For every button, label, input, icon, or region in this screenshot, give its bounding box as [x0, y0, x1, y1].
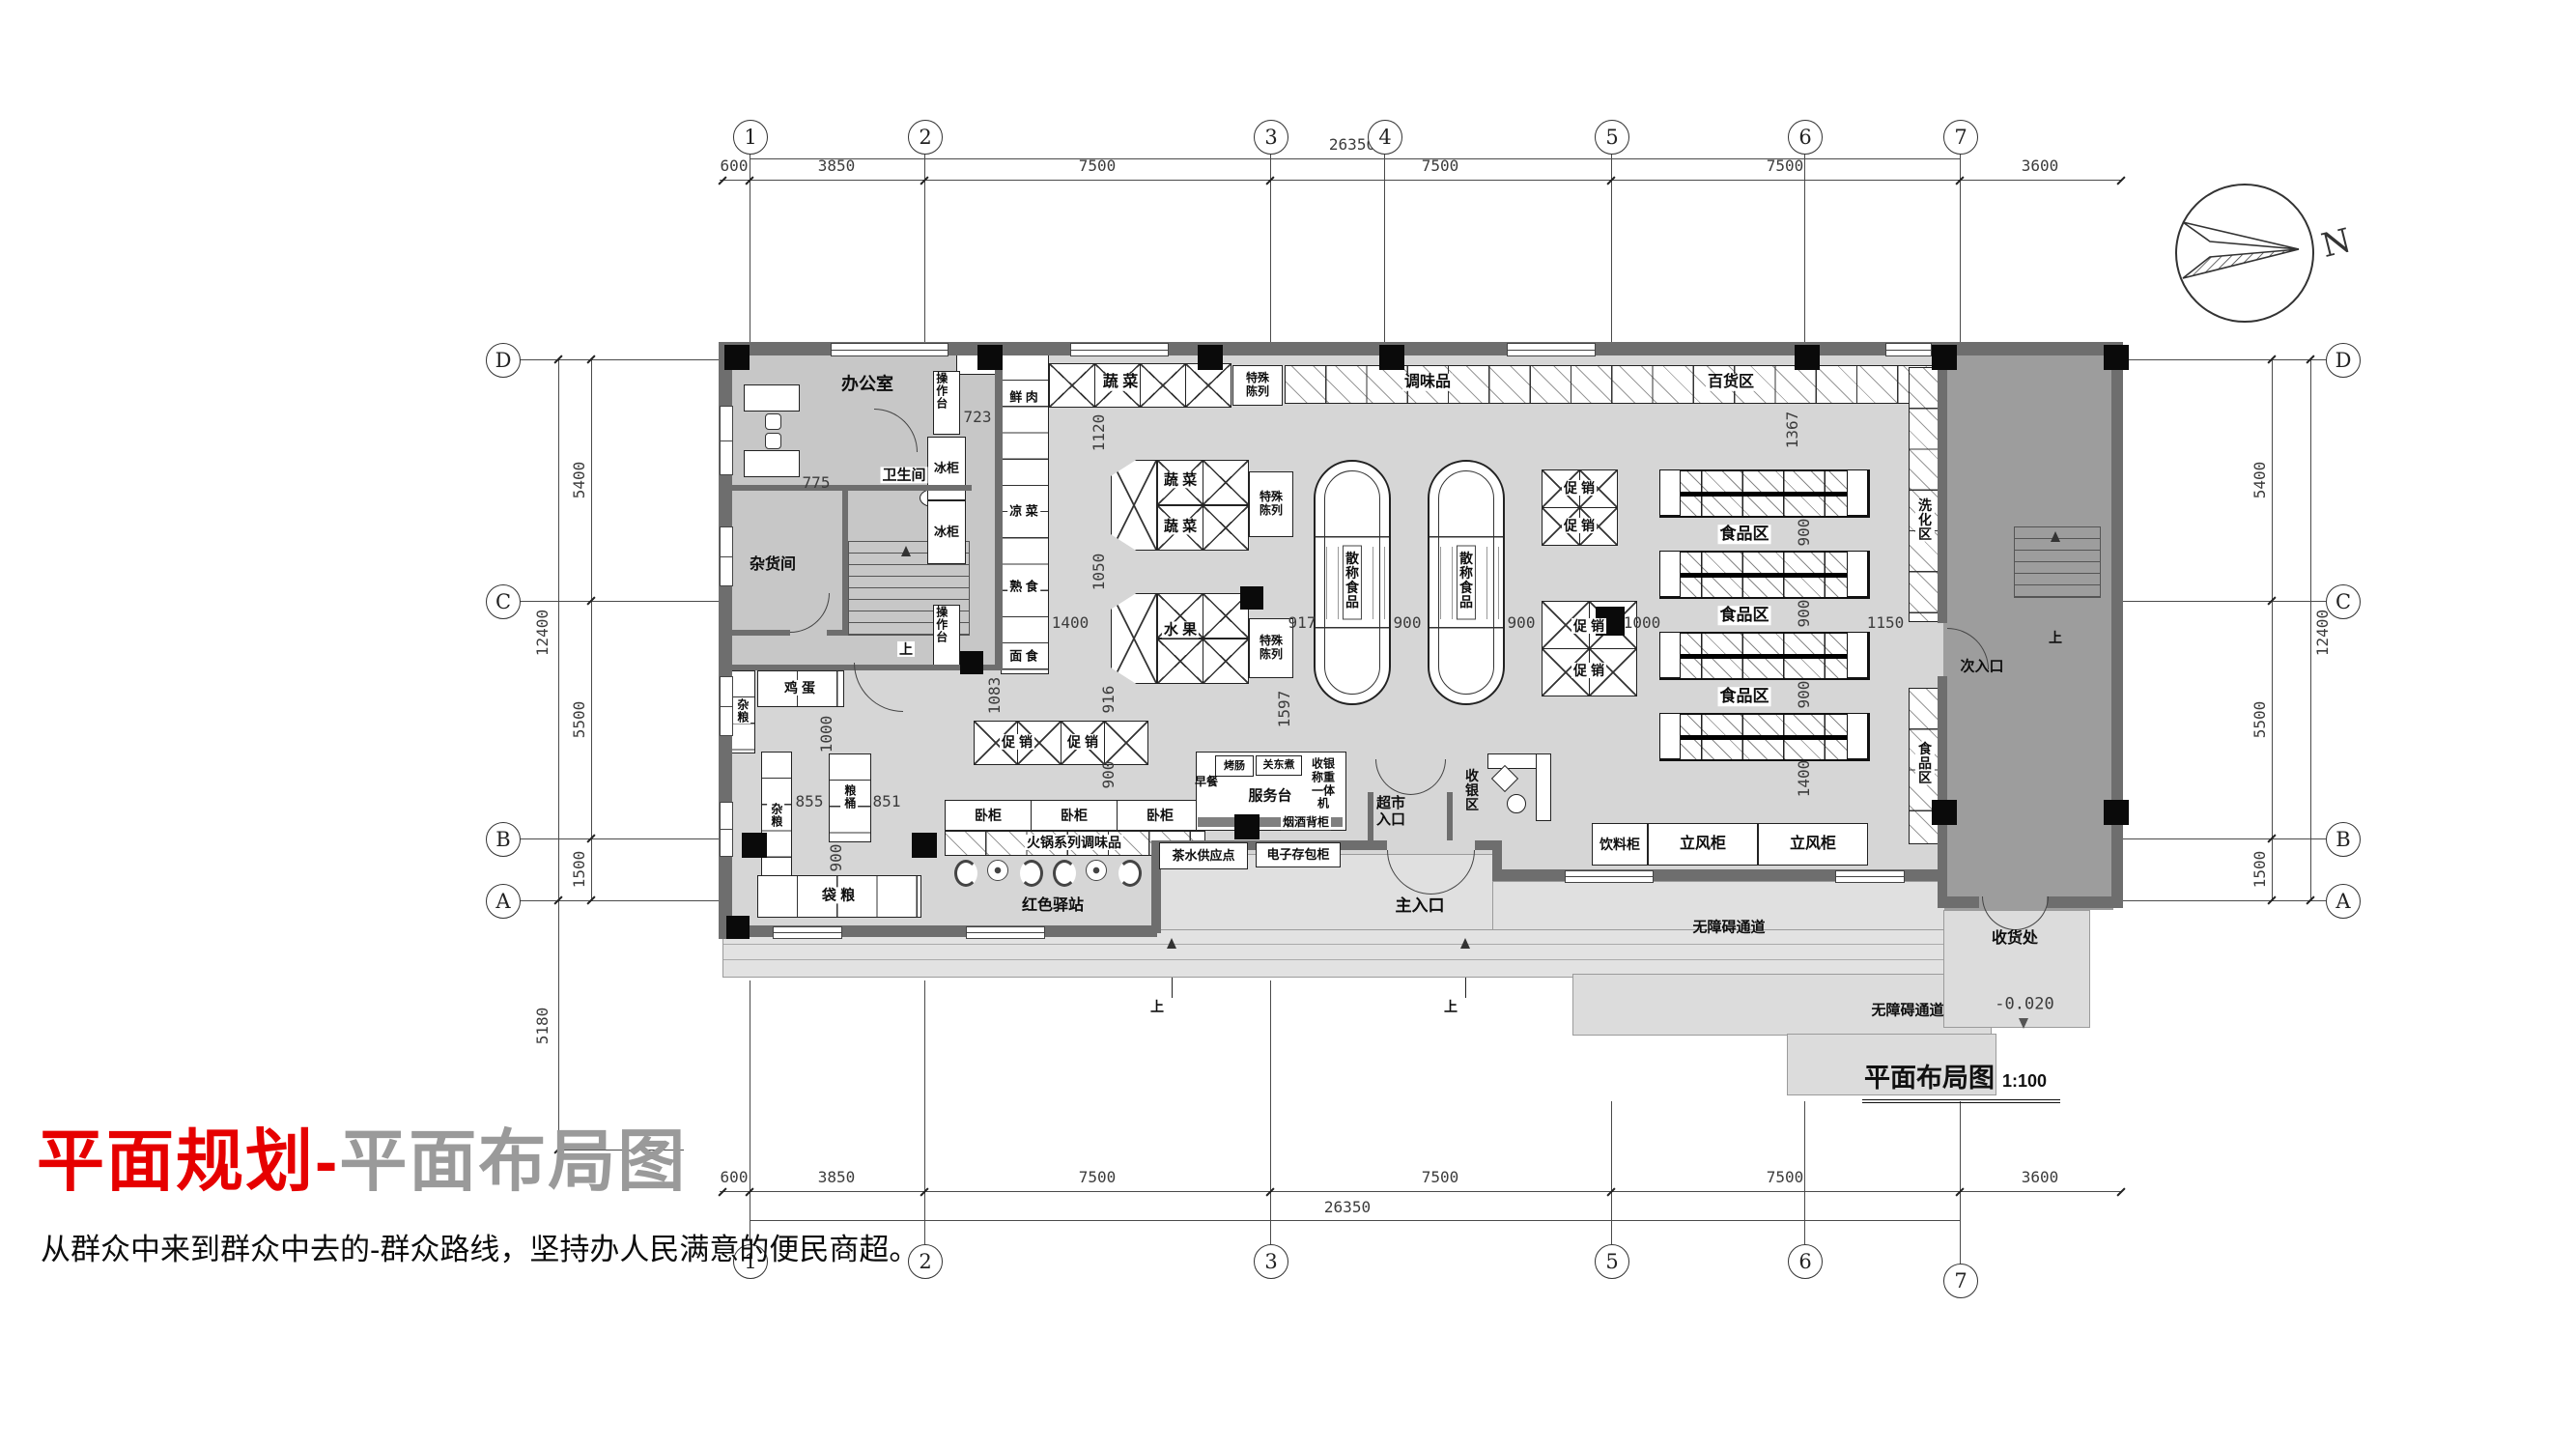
dim-851: 851 [873, 794, 901, 810]
dim-bottom-3600: 3600 [2022, 1170, 2059, 1185]
label-breakfast: 早餐 [1195, 776, 1218, 789]
window-icon [720, 406, 733, 475]
prep-counter-2: 操作台 [933, 605, 960, 668]
dim-1000a: 1000 [819, 716, 835, 753]
elevation-marker-icon [2019, 1018, 2028, 1034]
column [977, 345, 1003, 370]
label-bag-grain: 袋 粮 [820, 887, 857, 903]
dim-line-bottom [720, 1191, 2121, 1192]
north-compass-icon [2175, 184, 2314, 323]
display-table [1203, 505, 1249, 551]
tea-point: 茶水供应点 [1159, 842, 1248, 869]
dim-1367: 1367 [1785, 412, 1800, 449]
label-service-desk: 服务台 [1248, 787, 1291, 804]
zone-label-food-3: 食品区 [1718, 687, 1771, 706]
window-icon [1070, 343, 1169, 356]
label-pos: 收银称重一体机 [1310, 757, 1337, 810]
desk [744, 450, 800, 477]
office-chair [765, 413, 781, 430]
stool-icon [1507, 794, 1526, 813]
zone-label-cashier: 收银区 [1464, 769, 1480, 812]
grid-bubble-top-4: 4 [1368, 120, 1402, 155]
column [1795, 345, 1820, 370]
dim-left-5180: 5180 [535, 1008, 551, 1045]
column [1240, 586, 1263, 610]
dim-line-left-inner [591, 359, 592, 900]
label-promo-2: 促 销 [1562, 518, 1597, 533]
chair-icon [1020, 860, 1043, 887]
dim-900d: 900 [1508, 615, 1536, 631]
dim-right-5400: 5400 [2252, 462, 2268, 499]
wall-office-divider [995, 350, 1003, 668]
dim-top-600: 600 [721, 158, 749, 174]
dim-bottom-7500a: 7500 [1079, 1170, 1117, 1185]
label-sub-entry: 次入口 [1960, 658, 2003, 674]
grid-bubble-right-C: C [2326, 584, 2361, 619]
chest-freezer-2: 卧柜 [1031, 800, 1118, 831]
chair-icon [1118, 860, 1142, 887]
window-icon [1507, 343, 1596, 356]
dim-top-7500c: 7500 [1767, 158, 1804, 174]
stair-up-label: 上 [897, 641, 915, 657]
promo-table [1104, 721, 1148, 765]
column [1379, 345, 1404, 370]
display-table [1049, 363, 1095, 408]
dim-bottom-7500c: 7500 [1767, 1170, 1804, 1185]
dim-900b: 900 [1101, 761, 1117, 789]
receiving-zone-floor [1943, 350, 2113, 910]
window-icon [720, 802, 733, 857]
label-red-station: 红色驿站 [1022, 897, 1084, 915]
dim-916: 916 [1101, 686, 1117, 714]
grid-bubble-left-B: B [486, 822, 521, 857]
stair-up-arrow-icon [2051, 526, 2060, 542]
dim-top-3600: 3600 [2022, 158, 2059, 174]
bulk-gondola-2: 散称食品 [1428, 460, 1505, 705]
wall-receiving-divider-b [1938, 676, 1947, 908]
label-egg: 鸡 蛋 [782, 680, 817, 696]
column [1932, 345, 1957, 370]
label-receiving: 收货处 [1992, 930, 2038, 948]
walk-up-label: 上 [1444, 999, 1458, 1014]
column [1198, 345, 1223, 370]
upright-cooler-1: 立风柜 [1648, 823, 1758, 866]
label-market-entry: 超市入口 [1374, 795, 1407, 829]
window-icon [720, 676, 733, 736]
dim-bottom-7500b: 7500 [1422, 1170, 1459, 1185]
column [726, 916, 750, 939]
dim-bottom-total: 26350 [1324, 1200, 1371, 1215]
grid-bubble-right-B: B [2326, 822, 2361, 857]
dim-1597: 1597 [1277, 691, 1292, 728]
chair-icon [1053, 860, 1076, 887]
sausage-stand: 烤肠 [1215, 755, 1254, 777]
dim-1400a: 1400 [1052, 615, 1090, 631]
office-chair [765, 433, 781, 449]
label-promo-6: 促 销 [1065, 734, 1100, 750]
label-barrier-free-2: 无障碍通道 [1871, 1002, 1943, 1018]
dim-900c: 900 [1394, 615, 1422, 631]
dim-917: 917 [1288, 615, 1316, 631]
display-table [1157, 639, 1203, 684]
column [724, 345, 750, 370]
north-wall-shelving [1285, 365, 1939, 404]
page-subtitle: 从群众中来到群众中去的-群众路线，坚持办人民满意的便民商超。 [41, 1225, 919, 1268]
room-label-office: 办公室 [841, 375, 893, 395]
grid-bubble-bottom-6: 6 [1788, 1244, 1823, 1279]
drawing-title: 平面布局图1:100 [1862, 1057, 2060, 1103]
dim-right-5500: 5500 [2252, 701, 2268, 739]
dim-bottom-3850: 3850 [818, 1170, 856, 1185]
freezer-2: 冰柜 [927, 500, 966, 564]
dim-right-12400: 12400 [2315, 610, 2331, 656]
grid-line-6 [1804, 153, 1805, 343]
locker: 电子存包柜 [1256, 842, 1341, 867]
grid-line-C [519, 601, 722, 602]
stair-up-label: 上 [2049, 630, 2062, 645]
column [1234, 814, 1260, 839]
display-table-end [1111, 460, 1157, 551]
page-title-gray: 平面布局图 [339, 1123, 687, 1199]
display-table [1203, 639, 1249, 684]
walk-up-arrow-icon [1460, 933, 1470, 949]
grid-line-D [519, 359, 722, 360]
grid-bubble-top-2: 2 [908, 120, 943, 155]
zone-label-dept: 百货区 [1706, 374, 1756, 391]
dim-top-3850: 3850 [818, 158, 856, 174]
dim-900f: 900 [1797, 600, 1812, 628]
label-grain-2: 杂粮 [767, 803, 784, 828]
compass-arrow-icon [2177, 185, 2308, 317]
grid-bubble-left-D: D [486, 343, 521, 378]
display-table [1203, 460, 1249, 505]
display-table-end [1111, 593, 1157, 684]
wall-storage-divider [842, 491, 848, 634]
grid-line-4 [1384, 153, 1385, 343]
label-veg-1: 蔬 菜 [1101, 374, 1140, 391]
label-veg-3: 蔬 菜 [1162, 518, 1199, 534]
counter-label-fresh-meat: 鲜 肉 [1007, 391, 1040, 406]
dim-line-bottom-total [750, 1220, 1960, 1221]
label-fruit: 水 果 [1162, 621, 1199, 638]
dim-line-top [720, 180, 2121, 181]
chest-freezer-3: 卧柜 [1117, 800, 1203, 831]
drink-cooler: 饮料柜 [1592, 823, 1648, 866]
dim-900g: 900 [1797, 681, 1812, 709]
special-display-2: 特殊陈列 [1249, 471, 1293, 537]
window-icon [831, 343, 948, 356]
label-hotpot: 火锅系列调味品 [1025, 835, 1123, 850]
column [912, 833, 937, 858]
dim-left-5500: 5500 [572, 701, 587, 739]
dim-line-right-inner [2272, 359, 2273, 900]
dim-left-1500: 1500 [572, 851, 587, 889]
zone-label-seasoning: 调味品 [1402, 374, 1453, 391]
wall-south-mid-b [1475, 840, 1492, 850]
dim-left-5400: 5400 [572, 462, 587, 499]
window-icon [966, 926, 1045, 939]
counter-label-cooked-food: 熟 食 [1007, 581, 1040, 595]
dim-900a: 900 [829, 844, 844, 872]
dim-top-7500a: 7500 [1079, 158, 1117, 174]
dim-1120: 1120 [1091, 414, 1107, 452]
dim-1083: 1083 [987, 677, 1003, 715]
grid-bubble-right-D: D [2326, 343, 2361, 378]
drawing-scale: 1:100 [2002, 1071, 2047, 1091]
dim-1150: 1150 [1867, 615, 1905, 631]
grid-line-B [519, 838, 722, 839]
food-gondola-4 [1659, 713, 1870, 761]
label-promo-1: 促 销 [1562, 480, 1597, 496]
window-icon [773, 926, 842, 939]
label-barrier-free-1: 无障碍通道 [1692, 919, 1765, 935]
dim-855: 855 [796, 794, 824, 810]
column [742, 833, 767, 858]
display-table [1140, 363, 1186, 408]
grid-bubble-top-7: 7 [1943, 120, 1978, 155]
dim-top-7500b: 7500 [1422, 158, 1459, 174]
dim-line-left-outer [558, 359, 559, 1150]
dim-1400b: 1400 [1797, 760, 1812, 798]
oden-stand: 关东煮 [1256, 755, 1302, 776]
dim-900e: 900 [1797, 519, 1812, 547]
freezer-1: 冰柜 [927, 437, 966, 500]
column [2104, 800, 2129, 825]
grid-bubble-top-6: 6 [1788, 120, 1823, 155]
zone-label-food-1: 食品区 [1718, 525, 1771, 544]
room-label-storage: 杂货间 [750, 556, 796, 574]
grid-bubble-bottom-3: 3 [1254, 1244, 1288, 1279]
dim-723: 723 [964, 410, 992, 425]
window-icon [1885, 343, 1932, 356]
window-icon [720, 526, 733, 586]
grid-bubble-left-C: C [486, 584, 521, 619]
special-display-3: 特殊陈列 [1249, 618, 1293, 678]
wall-office-south [730, 485, 972, 491]
round-table-icon [987, 860, 1008, 881]
cashier-desk [1536, 753, 1551, 821]
label-elevation: -0.020 [1995, 997, 2053, 1013]
zone-label-wash: 洗化区 [1915, 498, 1935, 542]
grid-bubble-right-A: A [2326, 884, 2361, 919]
chest-freezer-1: 卧柜 [945, 800, 1032, 831]
zone-label-food-east: 食品区 [1915, 742, 1935, 785]
column [2104, 345, 2129, 370]
zone-label-food-2: 食品区 [1718, 606, 1771, 625]
grid-bubble-bottom-5: 5 [1595, 1244, 1629, 1279]
dim-775: 775 [803, 475, 831, 491]
chair-icon [954, 860, 977, 887]
wall-receiving-divider-a [1938, 342, 1947, 623]
food-gondola-2 [1659, 551, 1870, 599]
grid-line-A [519, 900, 722, 901]
dim-right-1500: 1500 [2252, 851, 2268, 889]
dim-bottom-600: 600 [721, 1170, 749, 1185]
column [960, 651, 983, 674]
grid-bubble-bottom-7: 7 [1943, 1264, 1978, 1298]
north-letter: N [2318, 221, 2356, 266]
dim-left-12400: 12400 [535, 610, 551, 656]
grid-bubble-top-1: 1 [733, 120, 768, 155]
label-promo-4: 促 销 [1571, 663, 1606, 678]
round-table-icon [1086, 860, 1107, 881]
bulk-gondola-1: 散称食品 [1314, 460, 1391, 705]
label-promo-5: 促 销 [1000, 734, 1034, 750]
counter-label-cold-dish: 凉 菜 [1007, 505, 1040, 520]
label-promo-3: 促 销 [1571, 618, 1606, 634]
label-grain-barrel: 粮桶 [840, 784, 858, 810]
upright-cooler-2: 立风柜 [1758, 823, 1868, 866]
label-tobacco-cabinet: 烟酒背柜 [1281, 816, 1331, 830]
grid-bubble-top-3: 3 [1254, 120, 1288, 155]
grid-bubble-top-5: 5 [1595, 120, 1629, 155]
stair-up-arrow-icon [901, 541, 911, 556]
dim-1050: 1050 [1091, 554, 1107, 591]
dim-1000b: 1000 [1624, 615, 1661, 631]
counter-label-noodle: 面 食 [1007, 650, 1040, 665]
page-title-dash: - [315, 1123, 339, 1199]
floor-plan-sheet: 平面规划-平面布局图 从群众中来到群众中去的-群众路线，坚持办人民满意的便民商超… [0, 0, 2576, 1449]
walk-up-label: 上 [1150, 999, 1164, 1014]
page-title: 平面规划-平面布局图 [37, 1107, 687, 1205]
column [1932, 800, 1957, 825]
special-display-1: 特殊陈列 [1232, 365, 1283, 406]
desk [744, 384, 800, 412]
page-title-red: 平面规划 [37, 1123, 315, 1199]
label-veg-2: 蔬 菜 [1162, 471, 1199, 488]
window-icon [1565, 870, 1654, 883]
food-gondola-1 [1659, 469, 1870, 518]
food-gondola-3 [1659, 632, 1870, 680]
room-label-toilet: 卫生间 [880, 467, 927, 483]
dim-line-right-outer [2310, 359, 2311, 900]
drawing-name: 平面布局图 [1864, 1064, 1995, 1093]
walk-up-arrow-icon [1167, 933, 1176, 949]
prep-counter: 操作台 [933, 371, 960, 435]
label-grain-1: 杂粮 [733, 698, 750, 724]
label-main-entry: 主入口 [1396, 896, 1445, 916]
window-icon [1835, 870, 1905, 883]
grid-bubble-left-A: A [486, 884, 521, 919]
